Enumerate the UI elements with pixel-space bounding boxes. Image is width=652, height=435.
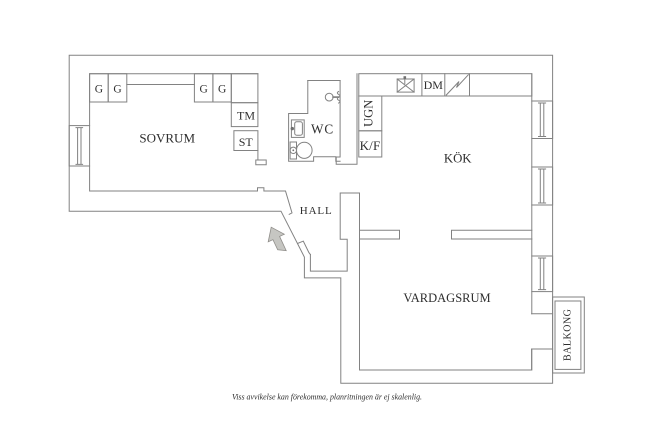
svg-text:Viss avvikelse kan förekomma,: Viss avvikelse kan förekomma, planritnin… bbox=[232, 393, 422, 402]
svg-text:UGN: UGN bbox=[362, 100, 376, 127]
svg-text:ST: ST bbox=[239, 135, 254, 149]
svg-text:G: G bbox=[218, 84, 226, 96]
svg-text:G: G bbox=[95, 84, 103, 96]
svg-text:G: G bbox=[199, 84, 207, 96]
svg-text:SOVRUM: SOVRUM bbox=[139, 130, 195, 145]
svg-text:TM: TM bbox=[237, 109, 255, 123]
svg-text:BALKONG: BALKONG bbox=[563, 309, 574, 361]
svg-text:HALL: HALL bbox=[300, 205, 333, 217]
svg-text:G: G bbox=[113, 84, 121, 96]
svg-text:WC: WC bbox=[311, 122, 334, 137]
svg-text:K/F: K/F bbox=[360, 138, 381, 153]
svg-text:DM: DM bbox=[424, 78, 444, 92]
svg-text:KÖK: KÖK bbox=[444, 151, 472, 165]
svg-text:VARDAGSRUM: VARDAGSRUM bbox=[403, 291, 490, 305]
